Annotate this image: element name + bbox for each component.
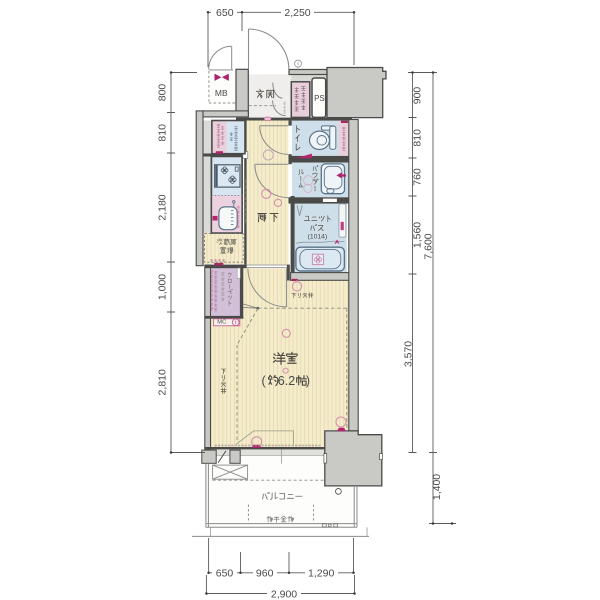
svg-text:810: 810 <box>157 124 169 142</box>
svg-text:2,900: 2,900 <box>271 588 297 600</box>
svg-text:650: 650 <box>216 568 234 580</box>
svg-text:MB: MB <box>215 88 228 98</box>
svg-text:1,400: 1,400 <box>431 474 443 500</box>
svg-text:2,180: 2,180 <box>157 194 169 220</box>
svg-text:2,250: 2,250 <box>284 7 310 19</box>
svg-text:(1014): (1014) <box>308 233 328 240</box>
svg-text:PS: PS <box>314 94 325 103</box>
svg-text:1,000: 1,000 <box>157 274 169 300</box>
svg-text:650: 650 <box>216 7 234 19</box>
svg-text:800: 800 <box>157 84 169 102</box>
svg-text:6.2: 6.2 <box>278 374 295 388</box>
svg-text:MC: MC <box>217 320 226 326</box>
svg-text:960: 960 <box>256 568 274 580</box>
svg-text:810: 810 <box>411 129 423 147</box>
svg-text:2,810: 2,810 <box>157 369 169 395</box>
svg-text:1,290: 1,290 <box>308 568 334 580</box>
svg-text:900: 900 <box>411 87 423 105</box>
svg-text:3,570: 3,570 <box>402 341 414 367</box>
svg-text:7,600: 7,600 <box>422 233 434 259</box>
svg-text:): ) <box>306 374 310 388</box>
svg-text:760: 760 <box>411 168 423 186</box>
